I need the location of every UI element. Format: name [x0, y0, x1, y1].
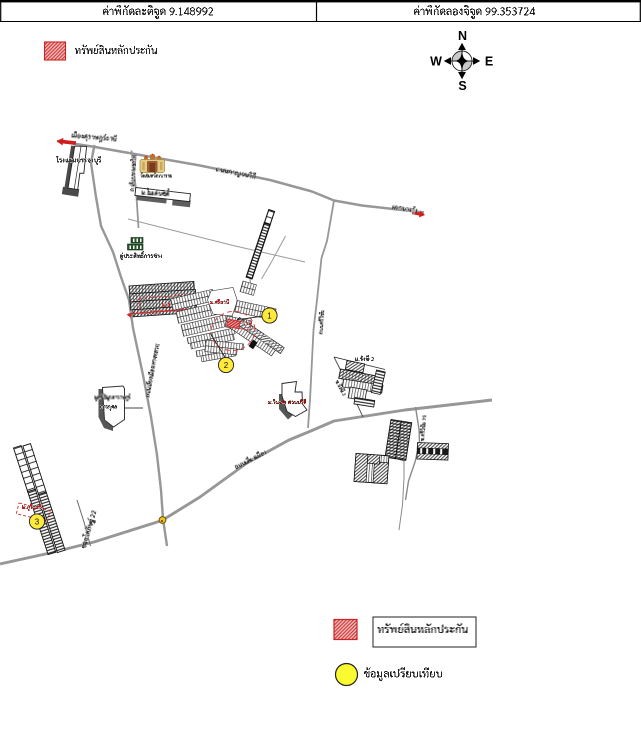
svg-text:3: 3 [35, 518, 40, 527]
svg-text:E: E [485, 55, 493, 69]
svg-text:2: 2 [224, 361, 229, 370]
svg-text:W: W [430, 55, 442, 69]
svg-text:1: 1 [267, 312, 272, 321]
svg-text:N: N [458, 29, 467, 43]
svg-text:S: S [458, 79, 466, 93]
